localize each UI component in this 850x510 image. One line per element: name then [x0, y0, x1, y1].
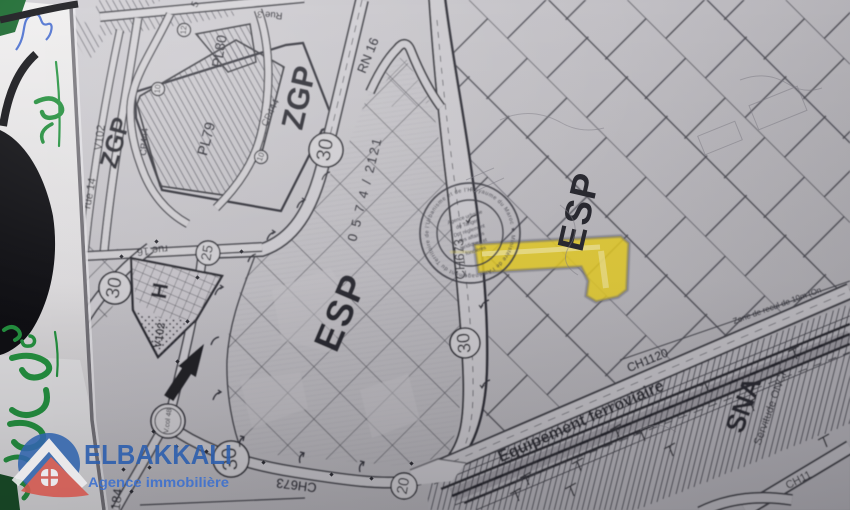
svg-text:ELBAKKALI: ELBAKKALI: [84, 439, 232, 470]
svg-text:Agence immobilière: Agence immobilière: [88, 474, 229, 490]
